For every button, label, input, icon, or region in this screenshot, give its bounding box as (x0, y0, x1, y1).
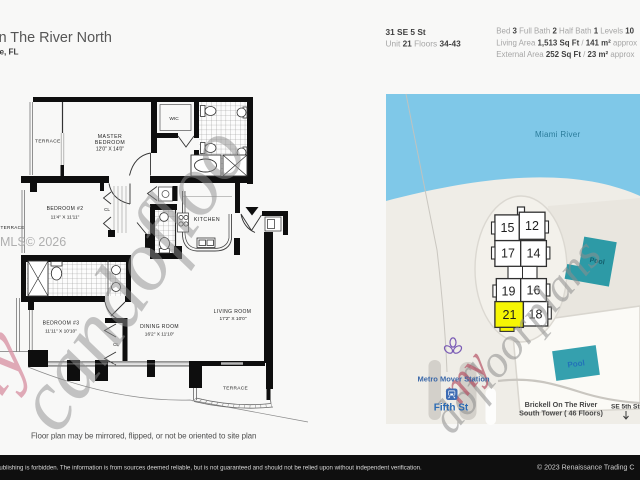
svg-text:LIVING ROOM: LIVING ROOM (214, 309, 252, 315)
svg-text:Miami Dade, FL: Miami Dade, FL (0, 47, 19, 56)
svg-text:Living Area 1,513 Sq Ft / 141: Living Area 1,513 Sq Ft / 141 m² approx (496, 38, 637, 47)
svg-text:15: 15 (501, 221, 515, 235)
svg-text:TERRACE: TERRACE (223, 386, 248, 392)
svg-text:Metro Mover Station: Metro Mover Station (417, 375, 490, 384)
svg-text:Brickell On The River North: Brickell On The River North (0, 30, 112, 46)
svg-text:19: 19 (502, 285, 516, 299)
svg-text:South Tower ( 46 Floors): South Tower ( 46 Floors) (519, 409, 603, 418)
svg-text:publishing is forbidden. The i: publishing is forbidden. The information… (0, 465, 422, 472)
svg-text:External Area 252 Sq Ft / 23 m: External Area 252 Sq Ft / 23 m² approx (496, 50, 634, 59)
svg-text:Floor plan may be mirrored, fl: Floor plan may be mirrored, flipped, or … (31, 432, 256, 441)
svg-text:17'2" X 10'0": 17'2" X 10'0" (219, 316, 246, 322)
svg-text:Miami River: Miami River (535, 130, 581, 139)
svg-text:Unit 21 Floors 34-43: Unit 21 Floors 34-43 (386, 39, 462, 49)
svg-text:Fifth St: Fifth St (434, 403, 469, 414)
svg-text:31 SE 5 St: 31 SE 5 St (386, 27, 426, 37)
svg-text:BEDROOM: BEDROOM (95, 140, 125, 146)
svg-text:14: 14 (527, 247, 541, 261)
svg-text:BEDROOM #2: BEDROOM #2 (47, 206, 84, 212)
svg-text:17: 17 (501, 247, 515, 261)
svg-text:MLS© 2026: MLS© 2026 (0, 235, 66, 249)
svg-text:© 2023 Renaissance Trading C: © 2023 Renaissance Trading C (537, 464, 634, 472)
svg-text:11'4" X 11'11": 11'4" X 11'11" (51, 215, 80, 221)
svg-text:TERRACE: TERRACE (1, 225, 25, 230)
svg-text:CL: CL (104, 207, 110, 212)
svg-text:SE 5th Street: SE 5th Street (611, 404, 640, 411)
svg-text:Bed 3 Full Bath 2 Half Bath: Bed 3 Full Bath 2 Half Bath 1 Levels 10 (496, 27, 634, 36)
svg-text:12'0" X 14'0": 12'0" X 14'0" (96, 147, 124, 153)
svg-text:TERRACE: TERRACE (35, 139, 61, 145)
svg-text:12: 12 (525, 219, 539, 233)
